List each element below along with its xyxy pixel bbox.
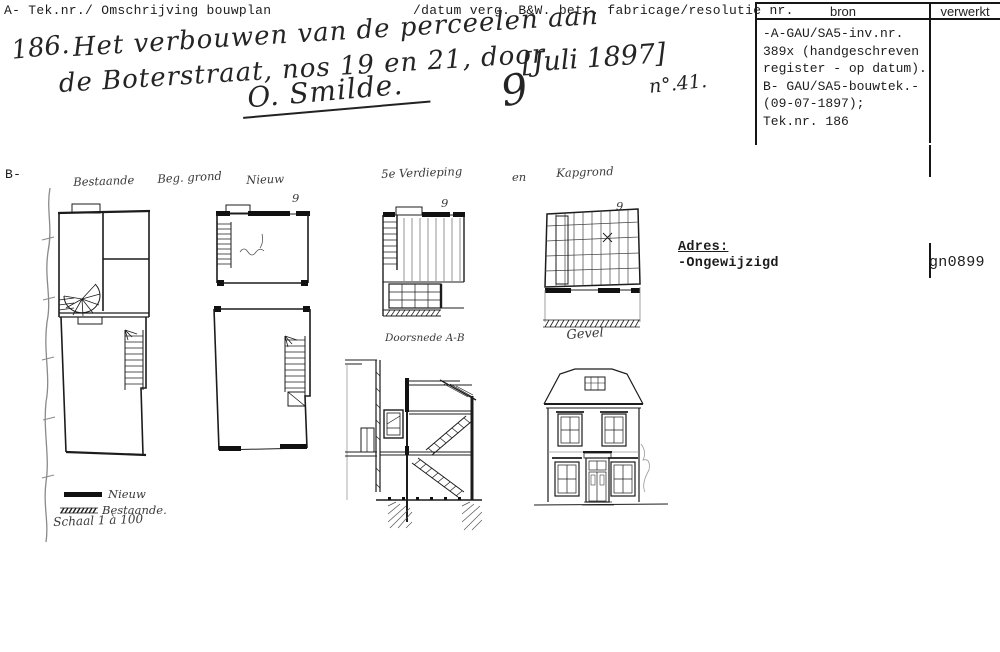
legend-bestaande-swatch — [60, 508, 98, 513]
doorsnede-section-drawing — [345, 360, 482, 530]
plan-verdieping-drawing — [383, 207, 465, 316]
plan-bestaande-drawing — [58, 204, 150, 455]
plan-kapgrond-drawing — [543, 209, 640, 327]
architectural-drawings — [0, 0, 1000, 652]
legend-nieuw-swatch — [64, 492, 102, 497]
gevel-facade-drawing — [534, 369, 668, 505]
scanned-bouwplan-card: A- Tek.nr./ Omschrijving bouwplan /datum… — [0, 0, 1000, 652]
torn-edge — [42, 188, 55, 542]
legend-swatches — [60, 492, 102, 513]
plan-beg-grond-drawing — [214, 205, 310, 451]
